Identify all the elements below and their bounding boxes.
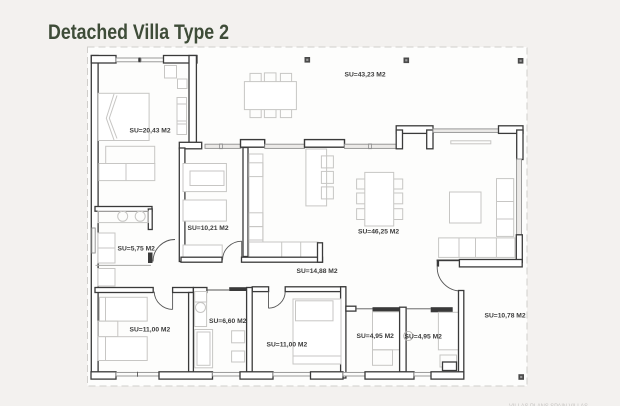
svg-text:SU=4,95 M2: SU=4,95 M2: [405, 334, 443, 341]
svg-text:SU=4,95 M2: SU=4,95 M2: [357, 333, 395, 340]
svg-text:SU=10,78 M2: SU=10,78 M2: [485, 313, 526, 320]
svg-text:SU=43,23 M2: SU=43,23 M2: [345, 72, 386, 79]
svg-text:Detached Villa Type 2: Detached Villa Type 2: [48, 20, 229, 44]
svg-text:SU=11,00 M2: SU=11,00 M2: [130, 327, 171, 334]
svg-text:SU=20,43 M2: SU=20,43 M2: [130, 128, 171, 135]
svg-text:SU=11,00 M2: SU=11,00 M2: [267, 342, 308, 349]
svg-text:SU=10,21 M2: SU=10,21 M2: [188, 225, 229, 232]
svg-text:SU=5,75 M2: SU=5,75 M2: [118, 246, 156, 253]
svg-text:SU=46,25 M2: SU=46,25 M2: [358, 229, 399, 236]
svg-text:SU=6,60 M2: SU=6,60 M2: [209, 318, 247, 325]
svg-text:SU=14,88 M2: SU=14,88 M2: [297, 268, 338, 275]
